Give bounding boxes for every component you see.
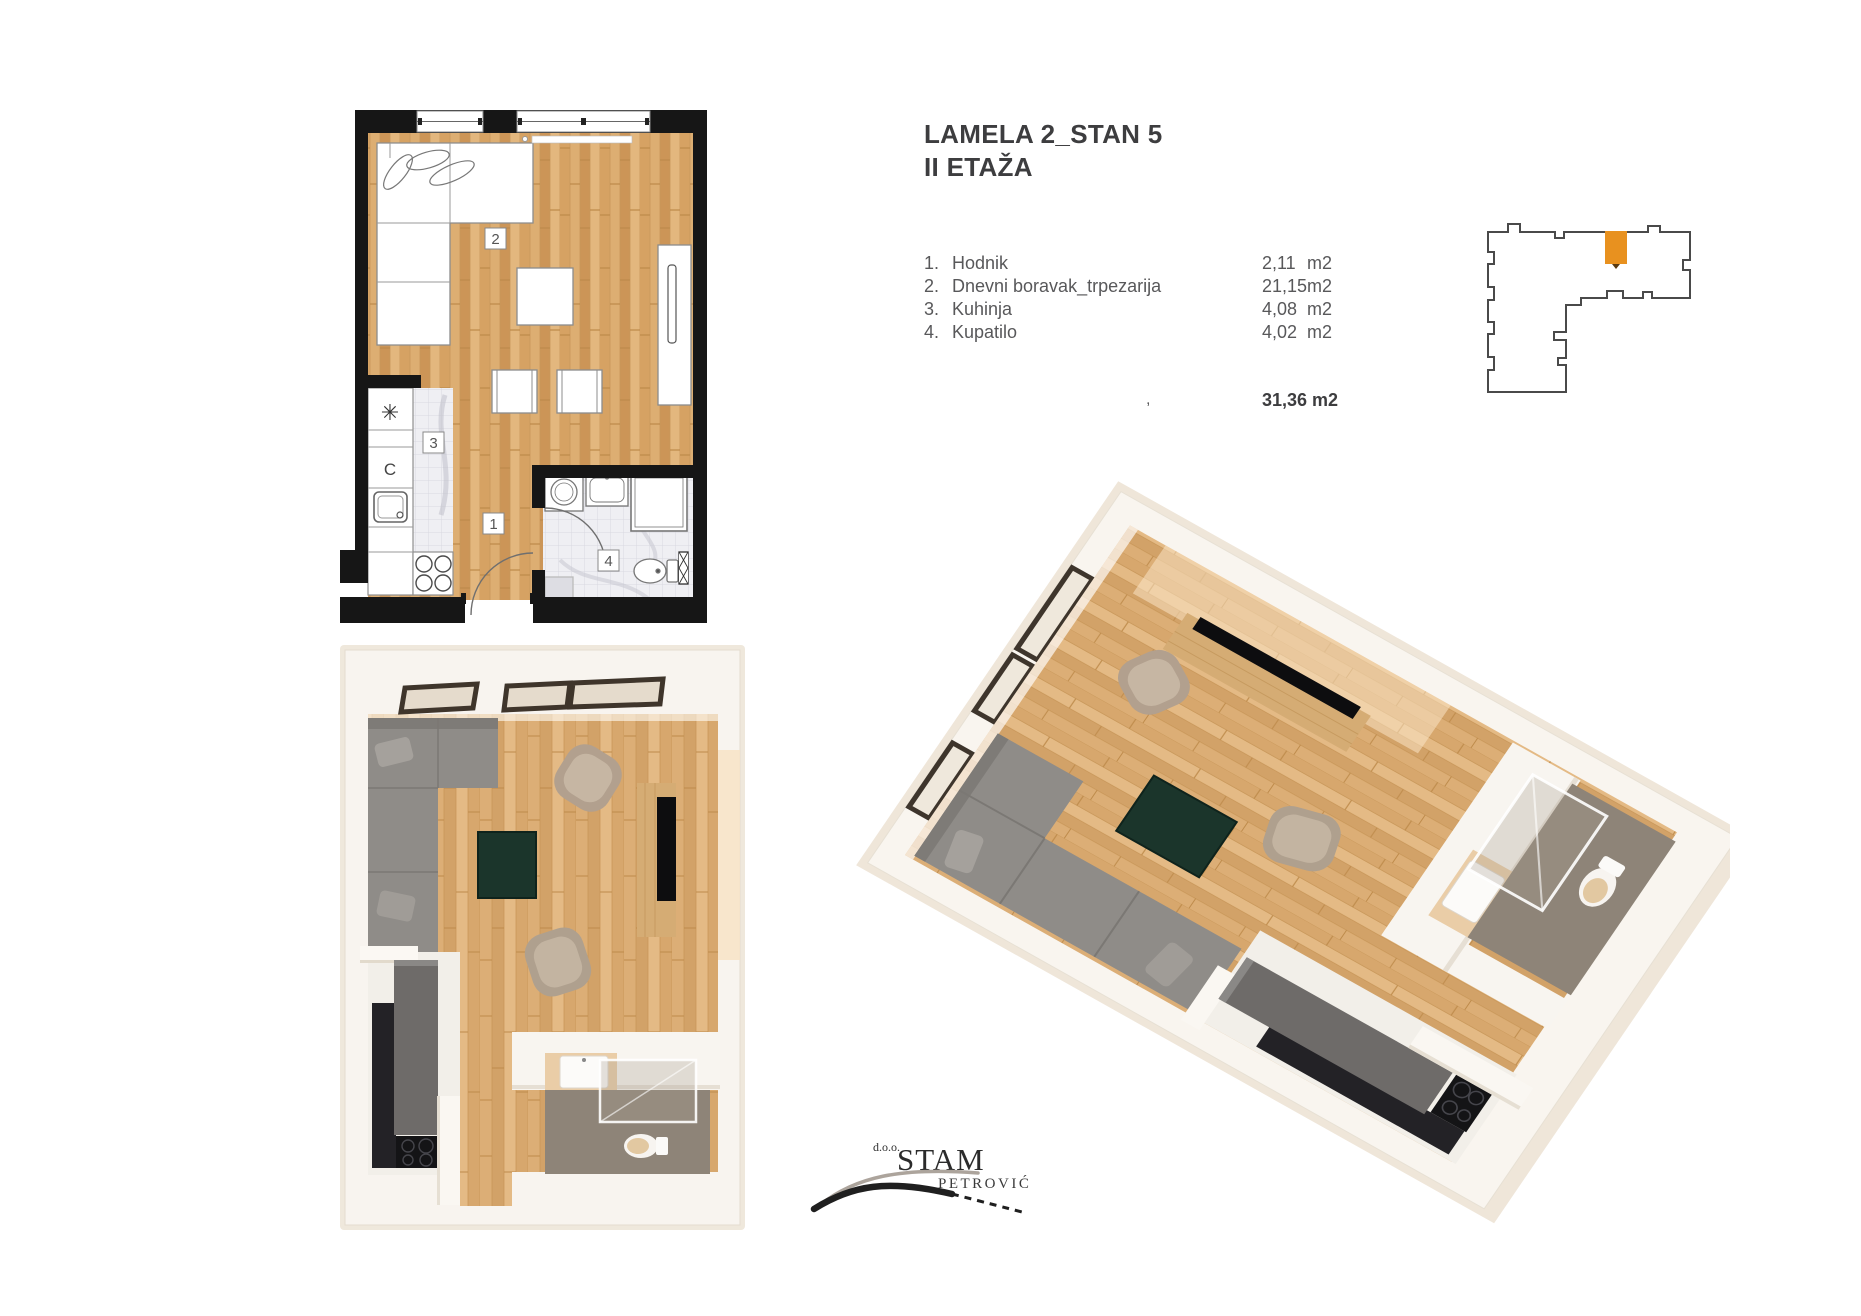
unit-highlight — [1605, 231, 1627, 264]
room-number: 4. — [924, 321, 952, 344]
area-unit: m2 — [1307, 298, 1352, 321]
curtain-rail — [532, 136, 632, 143]
toilet-2d — [634, 559, 666, 583]
room-area: 21,15 — [1262, 275, 1307, 298]
room-area: 2,11 — [1262, 252, 1307, 275]
oven-symbol-icon: C — [384, 460, 396, 479]
hall-partition — [437, 1096, 460, 1205]
logo-prefix: d.o.o. — [873, 1140, 900, 1154]
room-label-hall: 1 — [489, 516, 497, 533]
sheet-title: LAMELA 2_STAN 5 II ETAŽA — [924, 118, 1163, 184]
room-number: 1. — [924, 252, 952, 275]
entry-opening — [460, 1172, 512, 1206]
floor-plan-sheet: ✳ C — [0, 0, 1861, 1316]
building-outline — [1488, 224, 1690, 392]
room-area: 4,02 — [1262, 321, 1307, 344]
tv-sideboard-top — [637, 783, 676, 937]
logo-surname: PETROVIĆ — [938, 1175, 1031, 1192]
floor-plan-2d: ✳ C — [335, 105, 715, 630]
render-top-view — [330, 635, 755, 1235]
total-area: 31,36 m2 — [1262, 390, 1338, 411]
tv-cabinet-2d — [658, 245, 691, 405]
room-list-item: 2. Dnevni boravak_trpezarija 21,15 m2 — [924, 275, 1354, 298]
stray-comma: , — [1146, 391, 1150, 409]
room-name: Kupatilo — [952, 321, 1262, 344]
room-number: 3. — [924, 298, 952, 321]
bath-mat — [545, 577, 573, 600]
building-locator-map — [1480, 212, 1705, 402]
floor-title: II ETAŽA — [924, 151, 1163, 184]
room-list-item: 1. Hodnik 2,11 m2 — [924, 252, 1354, 275]
area-unit: m2 — [1307, 252, 1352, 275]
room-list: 1. Hodnik 2,11 m2 2. Dnevni boravak_trpe… — [924, 252, 1354, 344]
area-unit: m2 — [1307, 275, 1352, 298]
room-number: 2. — [924, 275, 952, 298]
window — [417, 111, 650, 132]
room-name: Dnevni boravak_trpezarija — [952, 275, 1262, 298]
room-area: 4,08 — [1262, 298, 1307, 321]
coffee-table-2d — [517, 268, 573, 325]
area-unit: m2 — [1307, 321, 1352, 344]
company-logo: d.o.o. STAM PETROVIĆ — [800, 1115, 1040, 1225]
coffee-table-top — [478, 832, 536, 898]
window — [401, 679, 663, 712]
room-label-kitchen: 3 — [429, 435, 437, 452]
fridge-symbol-icon: ✳ — [381, 400, 399, 425]
room-label-living: 2 — [491, 231, 499, 248]
room-name: Hodnik — [952, 252, 1262, 275]
room-label-bath: 4 — [604, 553, 612, 570]
room-list-item: 3. Kuhinja 4,08 m2 — [924, 298, 1354, 321]
apartment-title: LAMELA 2_STAN 5 — [924, 118, 1163, 151]
room-name: Kuhinja — [952, 298, 1262, 321]
room-list-item: 4. Kupatilo 4,02 m2 — [924, 321, 1354, 344]
